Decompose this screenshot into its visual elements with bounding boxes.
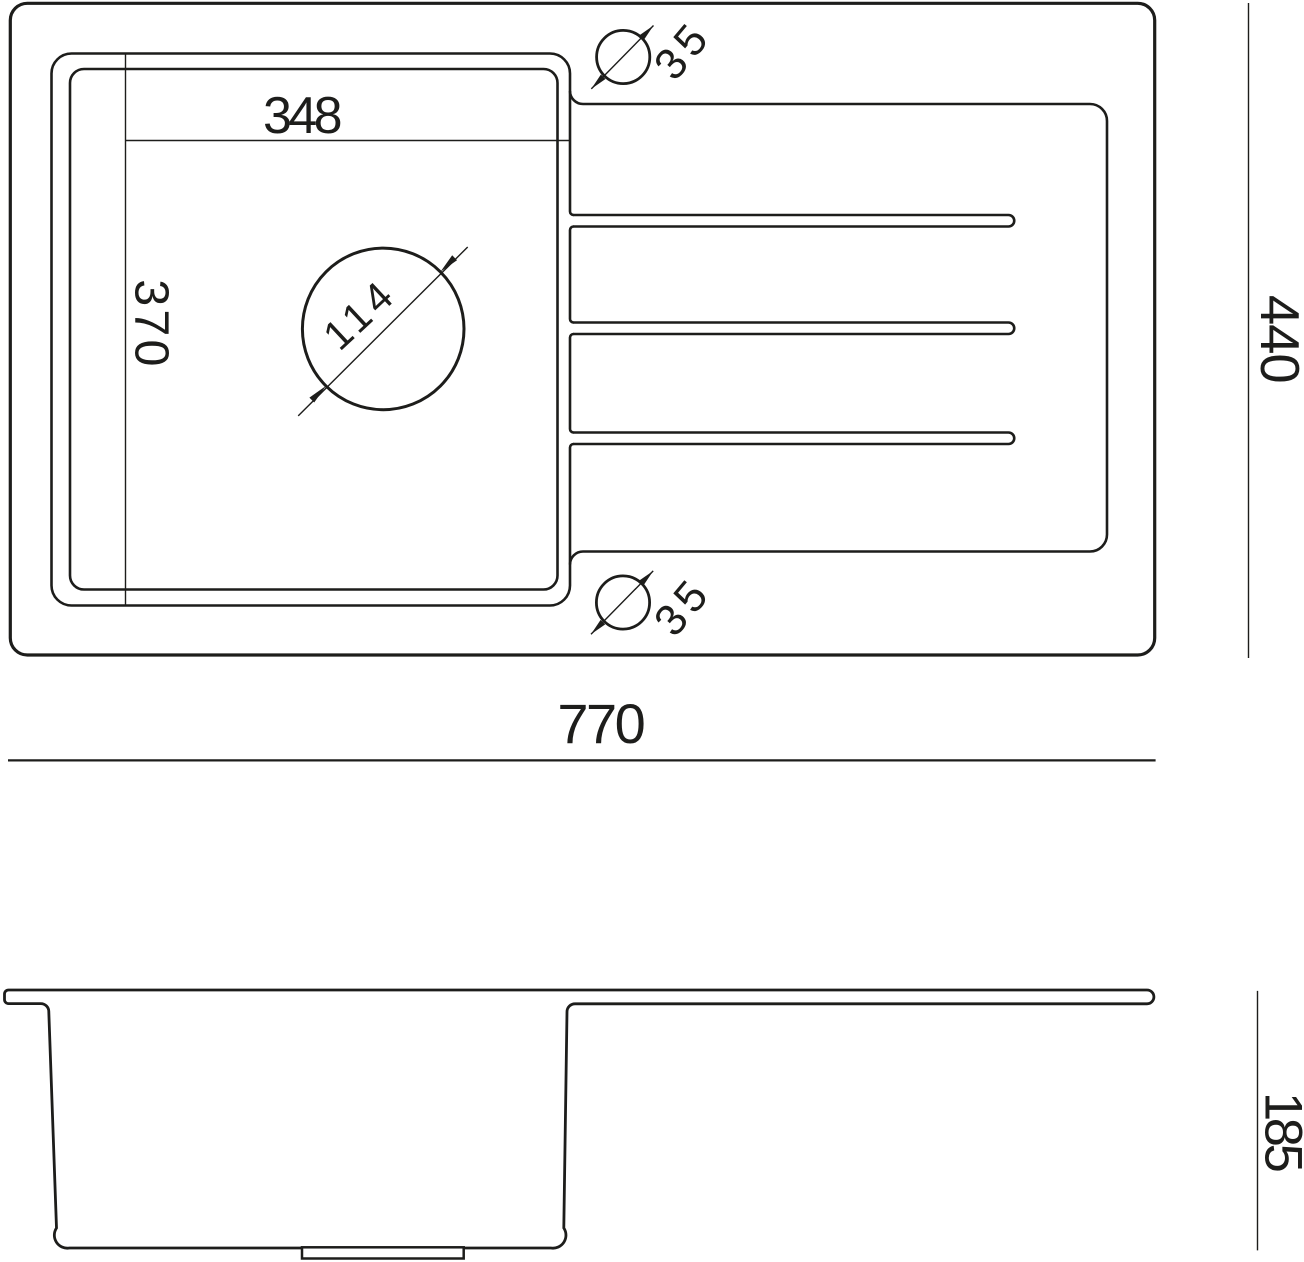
svg-text:370: 370 [125, 279, 179, 370]
svg-text:440: 440 [1249, 295, 1304, 383]
svg-text:185: 185 [1254, 1092, 1304, 1171]
svg-text:348: 348 [263, 87, 341, 145]
svg-text:770: 770 [557, 692, 643, 755]
